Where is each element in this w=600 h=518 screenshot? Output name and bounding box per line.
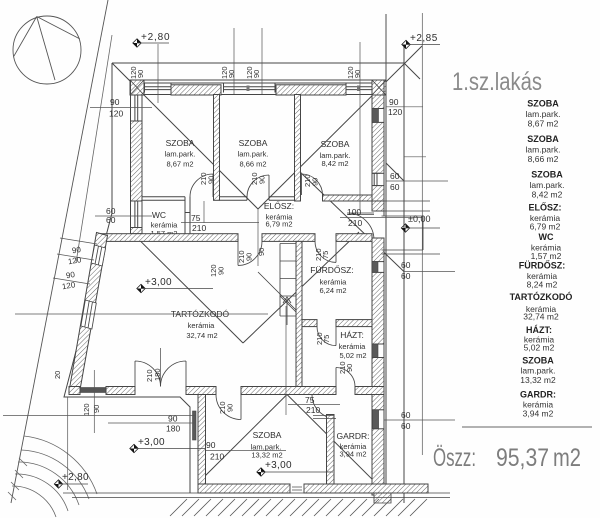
svg-text:lam.park.: lam.park. — [526, 145, 561, 155]
svg-text:120: 120 — [82, 403, 91, 416]
svg-text:SZOBA: SZOBA — [522, 356, 554, 366]
svg-text:lam.park.: lam.park. — [165, 150, 196, 159]
svg-text:60: 60 — [390, 171, 400, 181]
svg-text:32,74 m2: 32,74 m2 — [186, 331, 217, 340]
svg-text:GARDR:: GARDR: — [520, 390, 556, 400]
svg-text:ELŐSZ:: ELŐSZ: — [529, 202, 562, 213]
svg-text:3,94 m2: 3,94 m2 — [523, 409, 554, 419]
svg-text:FÜRDŐSZ:: FÜRDŐSZ: — [519, 260, 566, 271]
svg-text:90: 90 — [389, 97, 399, 107]
svg-text:75: 75 — [322, 335, 331, 343]
svg-text:60: 60 — [401, 260, 411, 270]
svg-text:SZOBA: SZOBA — [531, 170, 563, 180]
svg-text:210: 210 — [192, 223, 206, 233]
svg-text:+3,00: +3,00 — [265, 460, 292, 471]
svg-text:8,67 m2: 8,67 m2 — [166, 160, 193, 169]
svg-text:GARDR:: GARDR: — [336, 431, 369, 441]
svg-text:SZOBA: SZOBA — [239, 138, 268, 148]
svg-text:SZOBA: SZOBA — [321, 139, 350, 149]
svg-text:8,24 m2: 8,24 m2 — [527, 280, 558, 290]
svg-text:75: 75 — [321, 251, 330, 259]
svg-text:TARTÓZKODÓ: TARTÓZKODÓ — [510, 291, 573, 302]
svg-text:m2: m2 — [553, 444, 581, 472]
svg-text:210: 210 — [348, 218, 362, 228]
svg-text:60: 60 — [401, 410, 411, 420]
svg-text:HÁZT:: HÁZT: — [340, 330, 364, 340]
svg-text:90: 90 — [92, 405, 101, 413]
svg-text:6,24 m2: 6,24 m2 — [319, 286, 346, 295]
svg-text:32,74 m2: 32,74 m2 — [523, 312, 559, 322]
svg-text:±0,00: ±0,00 — [408, 214, 430, 224]
svg-text:90: 90 — [227, 70, 236, 78]
svg-text:90: 90 — [353, 70, 362, 78]
svg-text:60: 60 — [106, 215, 116, 225]
svg-text:90: 90 — [311, 178, 320, 186]
svg-text:90: 90 — [345, 364, 354, 372]
svg-text:SZOBA: SZOBA — [166, 138, 195, 148]
svg-text:kerámia: kerámia — [188, 321, 216, 330]
svg-text:SZOBA: SZOBA — [527, 134, 559, 144]
svg-text:60: 60 — [401, 271, 411, 281]
svg-text:90: 90 — [226, 404, 235, 412]
svg-text:6,79 m2: 6,79 m2 — [265, 220, 292, 229]
svg-text:lam.park.: lam.park. — [526, 109, 561, 119]
svg-text:90: 90 — [252, 70, 261, 78]
svg-text:ELŐSZ:: ELŐSZ: — [264, 201, 294, 211]
svg-text:5,02 m2: 5,02 m2 — [339, 351, 366, 360]
svg-text:180: 180 — [153, 368, 162, 381]
svg-text:120: 120 — [109, 109, 123, 119]
svg-text:60: 60 — [390, 182, 400, 192]
svg-text:lam.park.: lam.park. — [521, 366, 556, 376]
svg-text:120: 120 — [388, 107, 402, 117]
svg-text:20: 20 — [53, 371, 62, 379]
svg-text:95,37: 95,37 — [496, 444, 549, 472]
svg-text:WC: WC — [539, 232, 554, 242]
svg-text:100: 100 — [347, 207, 361, 217]
svg-text:90: 90 — [217, 267, 226, 275]
svg-text:90: 90 — [206, 440, 216, 450]
svg-text:60: 60 — [401, 421, 411, 431]
svg-text:6,79 m2: 6,79 m2 — [530, 222, 561, 232]
svg-text:180: 180 — [166, 424, 180, 434]
svg-text:75: 75 — [191, 213, 201, 223]
svg-text:SZOBA: SZOBA — [527, 99, 559, 109]
svg-text:Öszz:: Öszz: — [433, 444, 476, 472]
svg-text:90: 90 — [245, 253, 254, 261]
svg-text:SZOBA: SZOBA — [253, 430, 282, 440]
svg-text:13,32 m2: 13,32 m2 — [251, 451, 282, 460]
svg-text:90: 90 — [136, 70, 145, 78]
svg-text:HÁZT:: HÁZT: — [526, 325, 552, 335]
svg-text:210: 210 — [210, 452, 224, 462]
svg-text:+2,80: +2,80 — [141, 32, 170, 43]
svg-text:13,32 m2: 13,32 m2 — [520, 375, 556, 385]
svg-text:FÜRDŐSZ:: FÜRDŐSZ: — [310, 265, 353, 275]
svg-text:90: 90 — [207, 176, 216, 184]
svg-text:8,66 m2: 8,66 m2 — [239, 160, 266, 169]
svg-text:8,42 m2: 8,42 m2 — [321, 159, 348, 168]
svg-text:90: 90 — [168, 414, 178, 424]
svg-text:1.sz.lakás: 1.sz.lakás — [452, 68, 542, 96]
svg-text:+2,80: +2,80 — [62, 472, 89, 483]
svg-text:75: 75 — [305, 395, 315, 405]
svg-text:8,67 m2: 8,67 m2 — [528, 119, 559, 129]
svg-text:8,66 m2: 8,66 m2 — [528, 154, 559, 164]
svg-text:+3,00: +3,00 — [145, 277, 172, 288]
svg-text:+2,85: +2,85 — [410, 33, 438, 44]
svg-text:90: 90 — [110, 97, 120, 107]
svg-text:lam.park.: lam.park. — [530, 180, 565, 190]
svg-text:5,02 m2: 5,02 m2 — [524, 343, 555, 353]
svg-text:8,42 m2: 8,42 m2 — [532, 190, 563, 200]
svg-text:210: 210 — [306, 405, 320, 415]
svg-text:lam.park.: lam.park. — [238, 150, 269, 159]
svg-text:1,57 m2: 1,57 m2 — [531, 251, 562, 261]
svg-text:+3,00: +3,00 — [138, 437, 165, 448]
svg-text:3,94 m2: 3,94 m2 — [339, 450, 366, 459]
svg-text:90: 90 — [258, 176, 267, 184]
svg-text:kerámia: kerámia — [339, 342, 367, 351]
svg-text:WC: WC — [152, 210, 166, 220]
